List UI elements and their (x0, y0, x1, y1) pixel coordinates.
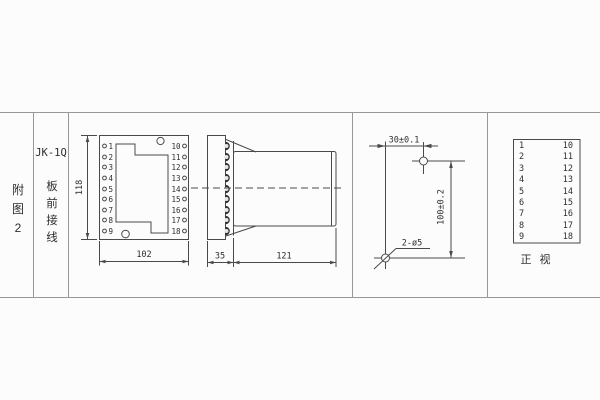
terminal-pin-icon (103, 208, 107, 212)
terminal-number: 16 (171, 206, 181, 215)
model-label-column: JK-1Q 板 前 接 线 (35, 147, 67, 244)
dimension-text: 30±0.1 (389, 136, 420, 146)
terminal-number: 14 (171, 185, 181, 194)
dimension-text: 35 (215, 252, 225, 262)
figure-label-column: 附 图 2 (12, 183, 24, 235)
cone-line-top (226, 140, 256, 153)
table-cell-right: 11 (563, 152, 573, 162)
stud-core-icon (225, 144, 229, 148)
arrowhead-right-icon (228, 261, 234, 265)
table-rows: 110 211 312 413 514 615 716 817 918 (519, 141, 573, 242)
side-view: 35 121 (191, 136, 342, 268)
stud-core-icon (225, 176, 229, 180)
drill-plan: 30±0.1 100±0.2 2-ø5 (369, 136, 465, 270)
terminal-number: 8 (109, 216, 114, 225)
terminal-number: 15 (171, 195, 180, 204)
table-cell-left: 9 (519, 232, 524, 242)
terminal-number: 4 (109, 174, 114, 183)
frame (0, 113, 600, 298)
terminal-number: 10 (171, 142, 181, 151)
table-cell-left: 8 (519, 221, 524, 231)
stud-core-icon (225, 197, 229, 201)
technical-drawing-page: 附 图 2 JK-1Q 板 前 接 线 1 2 3 4 5 6 7 8 9 10 (0, 0, 600, 400)
dimension-text: 118 (75, 180, 85, 195)
table-cell-left: 1 (519, 141, 524, 151)
terminal-number: 6 (109, 195, 114, 204)
drawing-canvas: 附 图 2 JK-1Q 板 前 接 线 1 2 3 4 5 6 7 8 9 10 (0, 0, 600, 400)
terminal-pin-icon (183, 229, 187, 233)
table-cell-right: 18 (563, 232, 573, 242)
dimension-text: 100±0.2 (437, 189, 447, 225)
terminal-pin-icon (103, 197, 107, 201)
terminal-number: 1 (109, 142, 114, 151)
terminal-number: 3 (109, 163, 114, 172)
front-view-inner-outline (116, 144, 168, 233)
model-label: JK-1Q (35, 147, 67, 159)
front-view-right-terminals: 10 11 12 13 14 15 16 17 18 (171, 142, 186, 236)
arrowhead-right-icon (330, 261, 336, 265)
arrowhead-up-icon (449, 161, 453, 168)
terminal-pin-icon (183, 155, 187, 159)
terminal-number: 5 (109, 185, 114, 194)
stud-core-icon (225, 155, 229, 159)
arrowhead-down-icon (86, 233, 90, 239)
terminal-number: 13 (171, 174, 180, 183)
figure-label-char: 图 (12, 202, 24, 216)
table-caption: 正 视 (521, 252, 551, 266)
front-view-left-terminals: 1 2 3 4 5 6 7 8 9 (103, 142, 114, 236)
terminal-pin-icon (103, 229, 107, 233)
body-outline (234, 152, 337, 227)
mounting-hole-bottom (122, 230, 130, 238)
figure-label-char: 2 (15, 221, 22, 235)
terminal-number: 9 (109, 227, 114, 236)
table-cell-left: 2 (519, 152, 524, 162)
table-cell-left: 6 (519, 198, 524, 208)
terminal-number: 11 (171, 153, 180, 162)
arrowhead-right-icon (378, 144, 386, 148)
drill-hole-top (420, 157, 428, 165)
table-cell-right: 13 (563, 175, 573, 185)
terminal-pin-icon (183, 208, 187, 212)
table-cell-right: 16 (563, 209, 573, 219)
wiring-label-char: 接 (46, 214, 58, 227)
stud-core-icon (225, 208, 229, 212)
terminal-number: 7 (109, 206, 114, 215)
dimension-text: 102 (136, 250, 151, 260)
terminal-number: 2 (109, 153, 114, 162)
arrowhead-up-icon (86, 136, 90, 142)
table-cell-right: 17 (563, 221, 573, 231)
terminal-number: 12 (171, 163, 180, 172)
table-cell-right: 15 (563, 198, 573, 208)
holes-label: 2-ø5 (402, 239, 422, 249)
terminal-pin-icon (103, 187, 107, 191)
terminal-pin-icon (183, 218, 187, 222)
terminal-number: 17 (171, 216, 180, 225)
table-cell-left: 5 (519, 187, 524, 197)
table-cell-right: 10 (563, 141, 573, 151)
mounting-hole-top (157, 137, 164, 144)
terminal-pin-icon (103, 176, 107, 180)
terminal-pin-icon (103, 155, 107, 159)
caption-char: 正 (521, 254, 532, 266)
wiring-label-char: 线 (46, 230, 58, 244)
figure-label-char: 附 (12, 183, 24, 197)
dimension-118: 118 (75, 136, 97, 240)
terminal-pin-icon (183, 176, 187, 180)
terminal-pin-icon (183, 197, 187, 201)
arrowhead-down-icon (449, 251, 453, 258)
table-cell-left: 4 (519, 175, 524, 185)
terminal-pin-icon (103, 218, 107, 222)
stud-core-icon (225, 165, 229, 169)
wiring-label-char: 前 (46, 196, 58, 210)
terminal-pin-icon (183, 187, 187, 191)
cone-line-bottom (226, 226, 256, 236)
stud-core-icon (225, 229, 229, 233)
wiring-label-char: 板 (46, 179, 58, 193)
table-cell-left: 3 (519, 164, 524, 174)
arrowhead-left-icon (234, 261, 240, 265)
table-cell-left: 7 (519, 209, 524, 219)
dimension-102: 102 (100, 241, 189, 266)
stud-core-icon (225, 218, 229, 222)
terminal-number: 18 (171, 227, 181, 236)
front-view: 1 2 3 4 5 6 7 8 9 10 11 12 13 14 15 16 1… (75, 136, 189, 266)
terminal-pin-icon (183, 165, 187, 169)
terminal-pin-icon (103, 165, 107, 169)
arrowhead-right-icon (183, 260, 189, 264)
terminal-pin-icon (103, 144, 107, 148)
caption-char: 视 (540, 252, 551, 266)
arrowhead-left-icon (208, 261, 214, 265)
terminal-table: 110 211 312 413 514 615 716 817 918 正 视 (514, 140, 581, 267)
arrowhead-left-icon (424, 144, 432, 148)
terminal-pin-icon (183, 144, 187, 148)
table-cell-right: 12 (563, 164, 573, 174)
dimension-text: 121 (276, 252, 291, 262)
arrowhead-left-icon (100, 260, 106, 264)
table-cell-right: 14 (563, 187, 573, 197)
